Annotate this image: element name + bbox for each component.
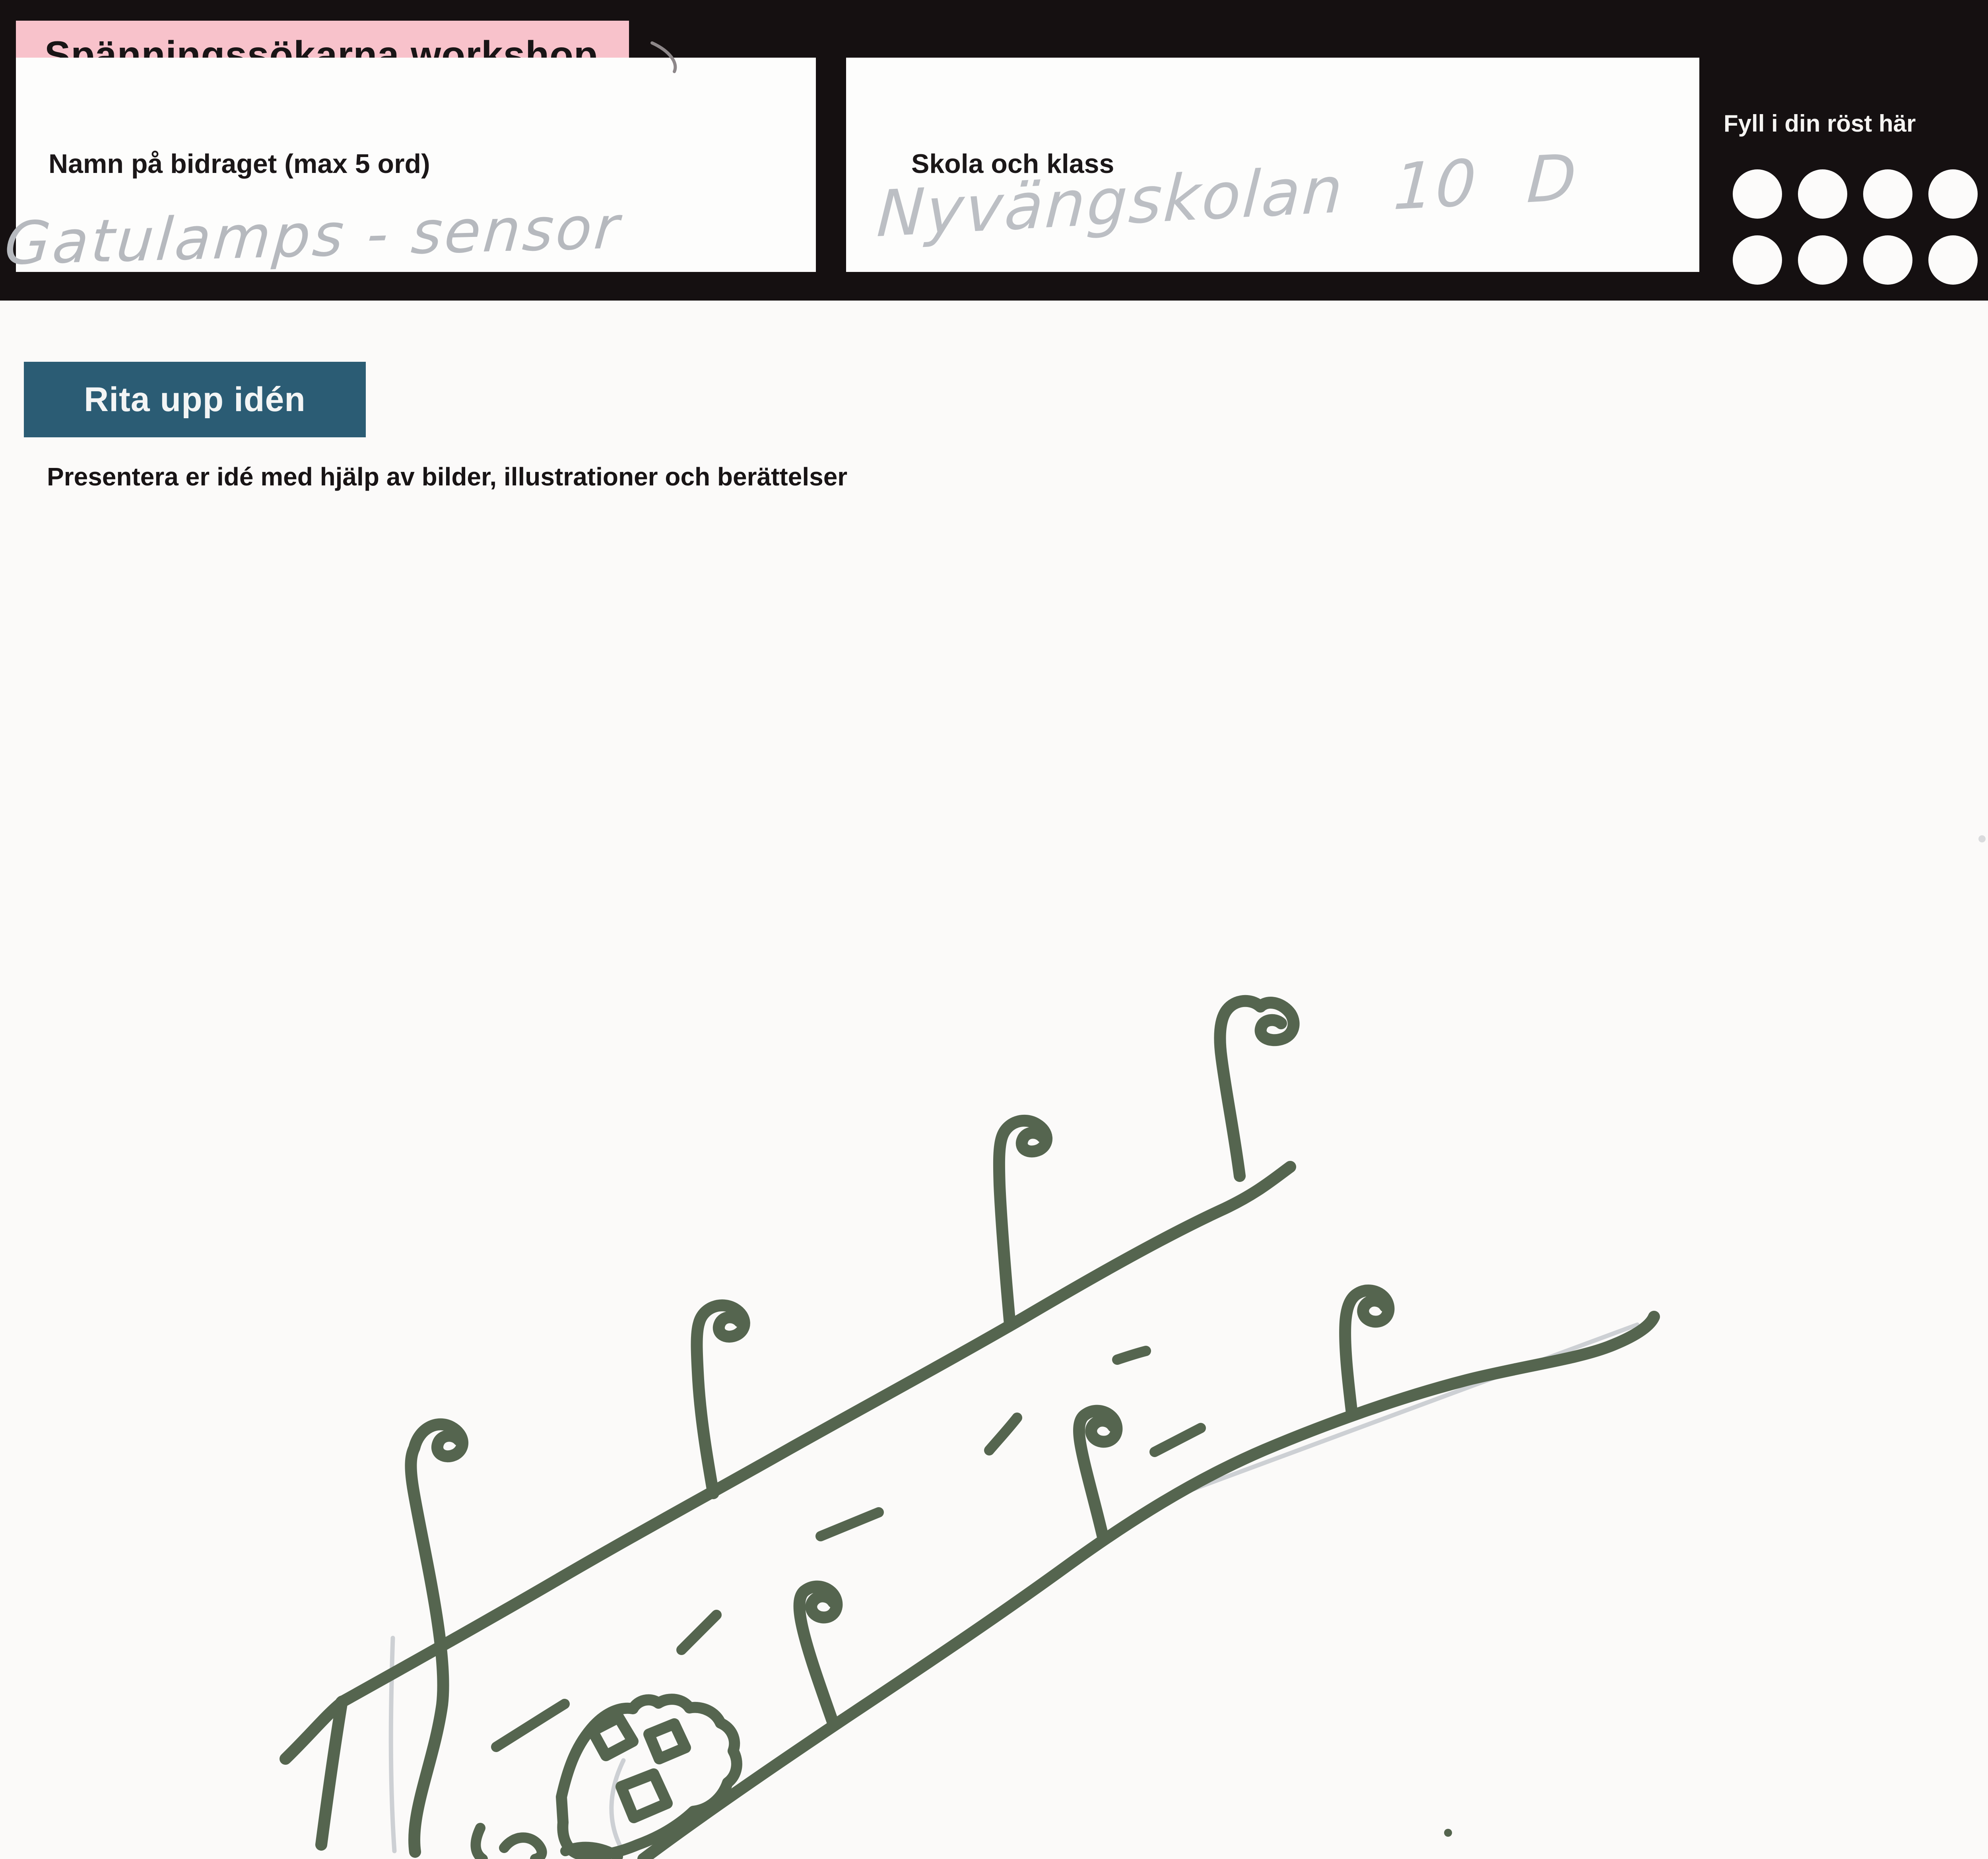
hand-drawn-road-sketch <box>0 0 1988 1859</box>
lamp-post-e <box>1345 1290 1388 1413</box>
scanned-worksheet-page: Spänningssökarna workshop Namn på bidrag… <box>0 0 1988 1859</box>
car-wheel <box>621 1774 667 1818</box>
lamp-post-g <box>800 1587 837 1724</box>
lamp-post-b <box>697 1305 744 1493</box>
lamp-post-f <box>1079 1411 1116 1537</box>
pencil-line-road <box>1174 1325 1637 1496</box>
under-car-scribble-2 <box>504 1838 542 1859</box>
road-bottom-edge <box>643 1317 1654 1859</box>
center-dash-1 <box>496 1704 565 1747</box>
center-dash-2 <box>681 1615 716 1650</box>
car-window-left <box>592 1717 633 1756</box>
gray-speck-mid <box>1978 835 1986 842</box>
center-dash-4 <box>989 1418 1017 1450</box>
lamp-post-c <box>999 1121 1046 1324</box>
lamp-post-d <box>1220 1001 1293 1176</box>
car-window-right <box>649 1724 685 1759</box>
center-dash-3 <box>821 1512 879 1536</box>
road-top-edge <box>341 1167 1290 1702</box>
center-dash-5 <box>1155 1428 1201 1452</box>
ink-dot-bottom <box>1444 1829 1452 1837</box>
bar-scratch <box>652 43 675 72</box>
under-car-scribble-1 <box>476 1828 483 1859</box>
pencil-arc-car <box>612 1760 623 1848</box>
center-dash-6 <box>1117 1351 1146 1360</box>
